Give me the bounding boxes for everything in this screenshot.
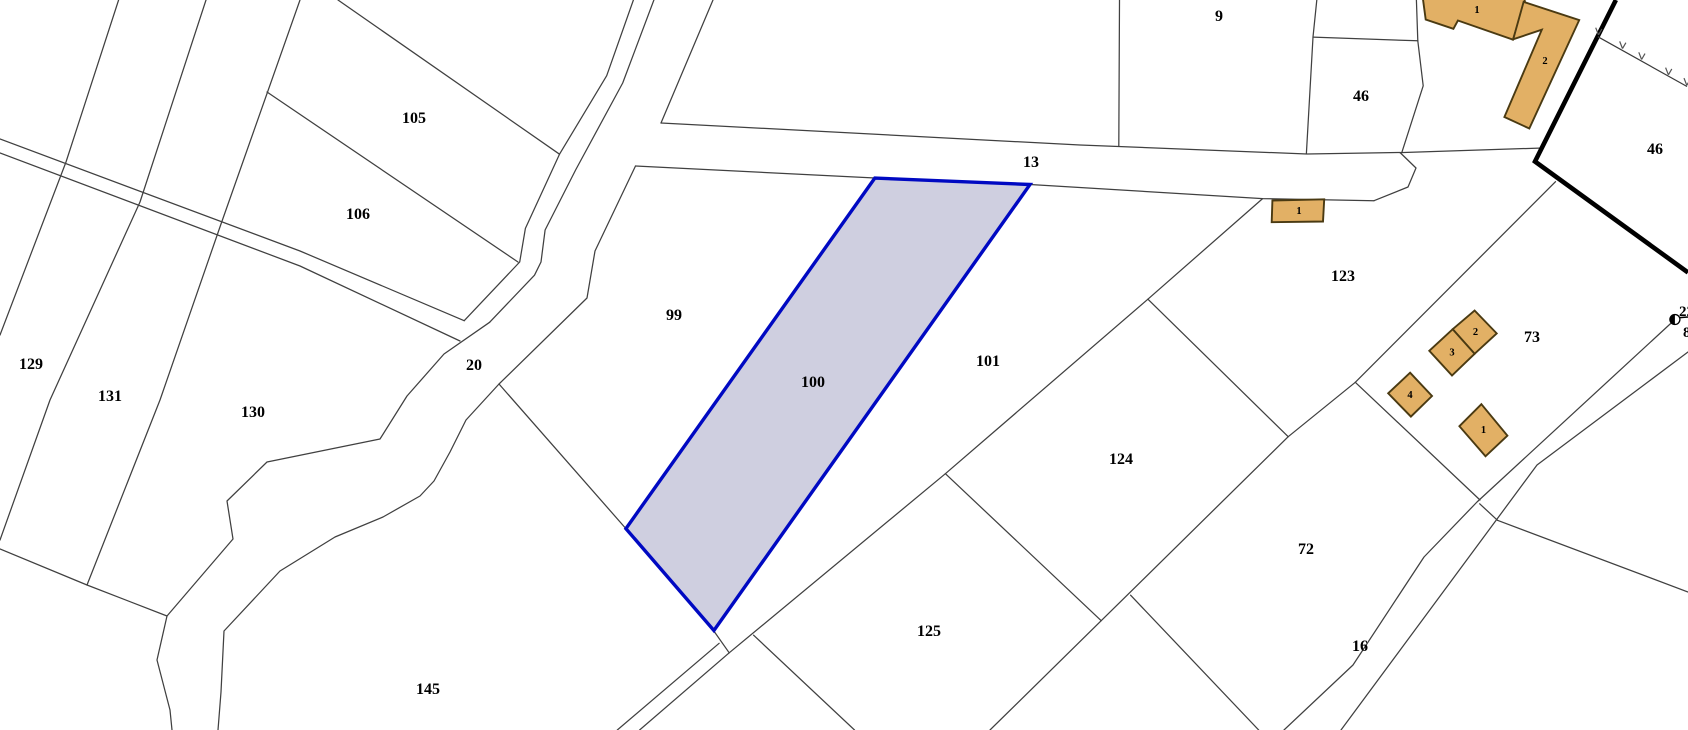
svg-text:72: 72: [1298, 541, 1314, 558]
svg-text:100: 100: [801, 374, 825, 391]
svg-text:16: 16: [1352, 638, 1368, 655]
svg-text:130: 130: [241, 404, 265, 421]
svg-text:20: 20: [466, 357, 482, 374]
svg-text:123: 123: [1331, 268, 1355, 285]
svg-text:101: 101: [976, 353, 1000, 370]
svg-text:2: 2: [1542, 56, 1547, 67]
svg-text:46: 46: [1647, 141, 1663, 158]
svg-text:125: 125: [917, 623, 941, 640]
svg-text:1: 1: [1481, 425, 1486, 436]
svg-text:124: 124: [1109, 451, 1133, 468]
svg-text:73: 73: [1524, 329, 1540, 346]
svg-text:13: 13: [1023, 154, 1039, 171]
svg-text:99: 99: [666, 307, 682, 324]
svg-text:3: 3: [1449, 348, 1454, 359]
svg-text:105: 105: [402, 110, 426, 127]
svg-text:46: 46: [1353, 88, 1369, 105]
svg-text:129: 129: [19, 356, 43, 373]
svg-text:131: 131: [98, 388, 122, 405]
svg-text:1: 1: [1474, 5, 1479, 16]
svg-text:9: 9: [1215, 8, 1223, 25]
svg-text:22: 22: [1679, 304, 1688, 320]
svg-text:2: 2: [1473, 327, 1478, 338]
svg-text:1: 1: [1296, 206, 1301, 217]
svg-text:145: 145: [416, 681, 440, 698]
svg-text:106: 106: [346, 206, 370, 223]
svg-text:8: 8: [1683, 325, 1688, 341]
svg-text:4: 4: [1407, 390, 1413, 401]
